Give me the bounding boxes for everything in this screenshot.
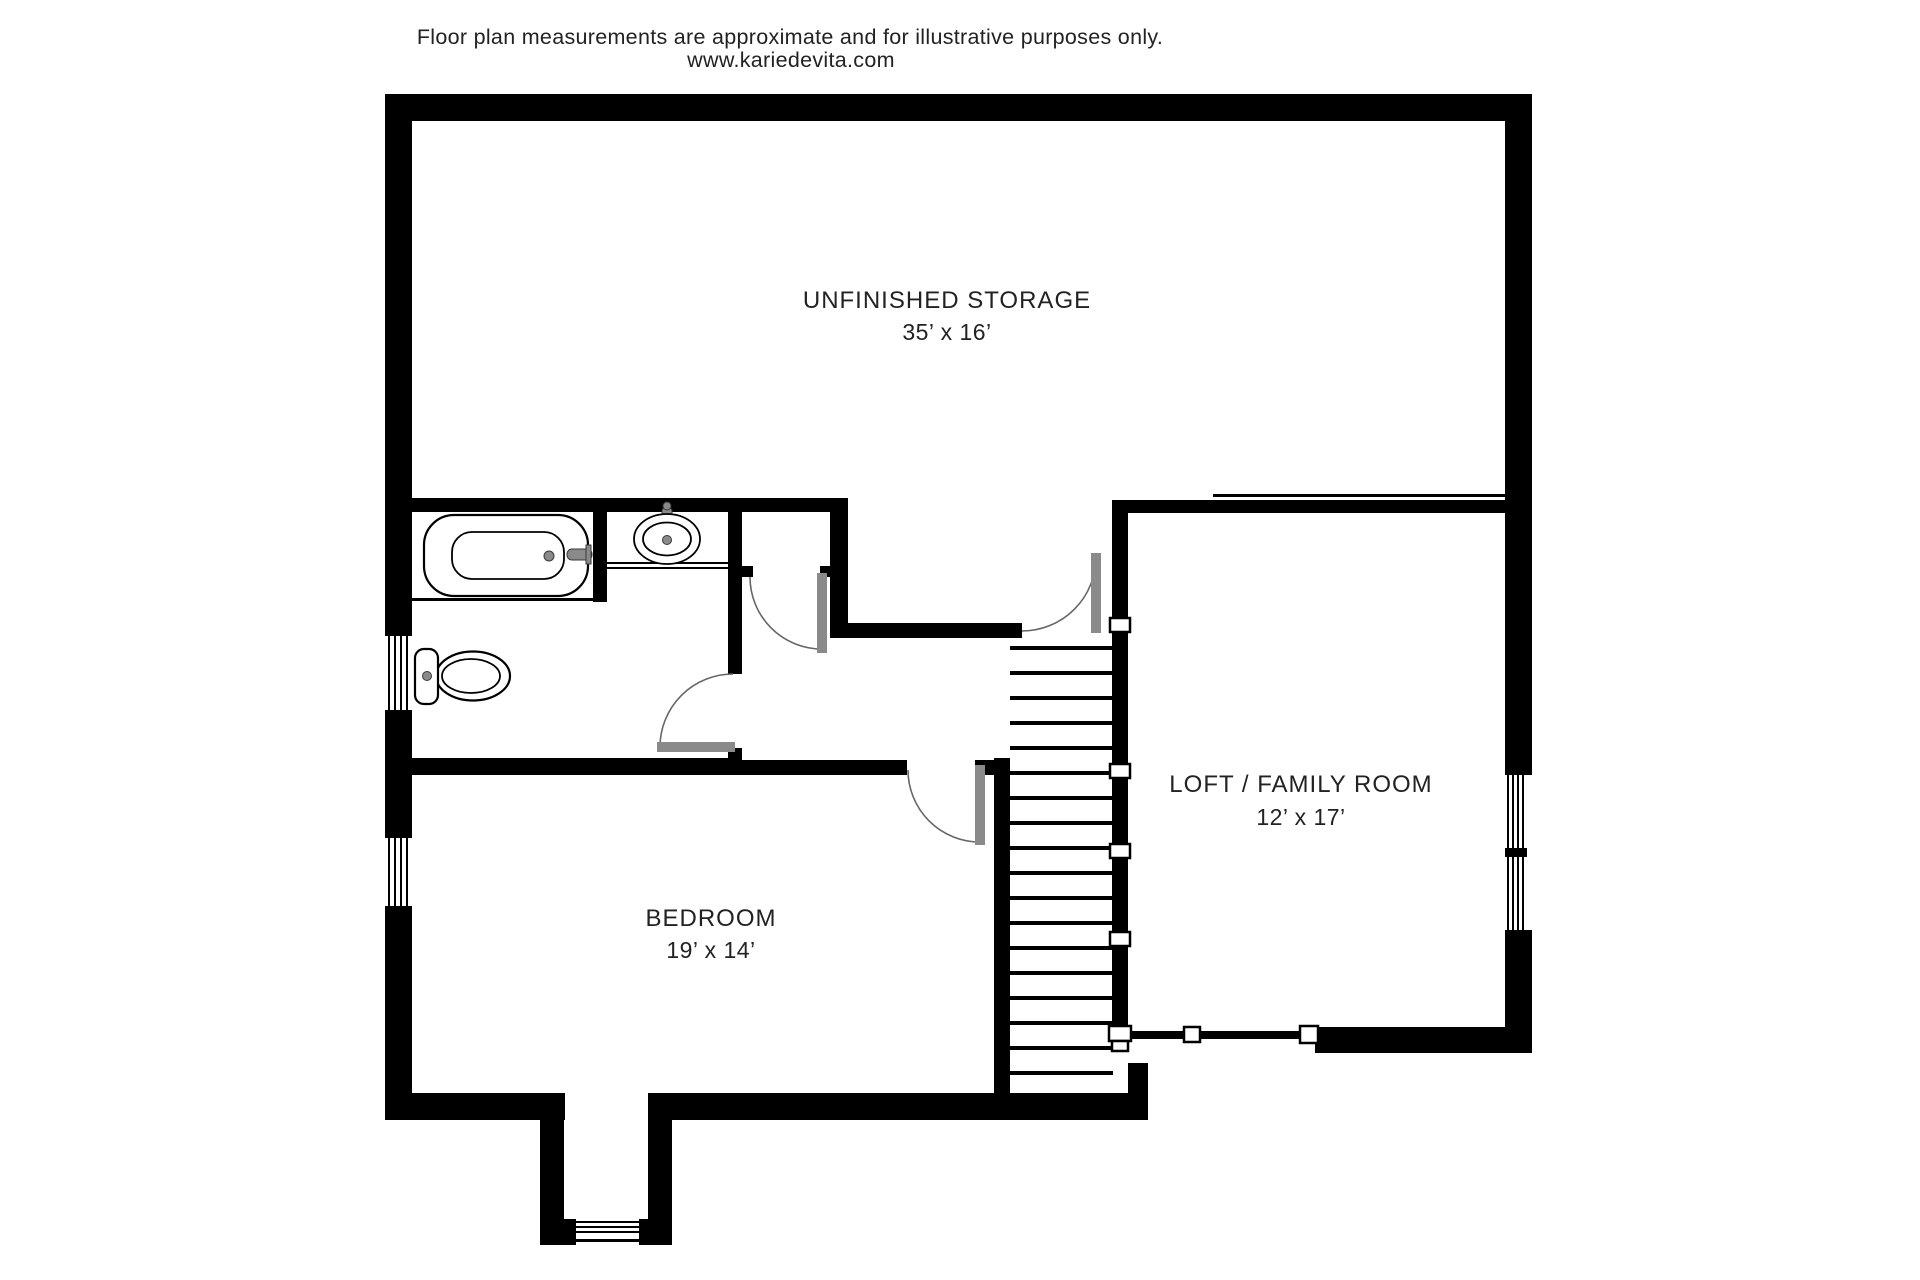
room-labels: UNFINISHED STORAGE 35’ x 16’ LOFT / FAMI… xyxy=(645,287,1432,963)
wall-loft-bottom xyxy=(1315,1027,1532,1053)
tub-drain xyxy=(544,551,554,561)
door-panel xyxy=(1091,553,1101,633)
staircase-icon xyxy=(1010,618,1318,1075)
bathroom-door xyxy=(657,674,735,752)
door-swing-icon xyxy=(750,577,822,649)
wall-stairwell-left xyxy=(994,758,1010,1120)
disclaimer-text: Floor plan measurements are approximate … xyxy=(417,25,1163,49)
loft-railing xyxy=(1128,1031,1304,1039)
railing-posts xyxy=(1109,618,1318,1051)
wall-loft-north xyxy=(1112,500,1532,513)
wall-bathroom-closet-divider xyxy=(728,498,742,674)
wall-left-bottom xyxy=(385,908,412,1120)
window-right-upper xyxy=(1505,772,1532,848)
wall-hall-north xyxy=(830,623,1022,638)
window-left-bedroom xyxy=(385,835,412,909)
storage-room-dimensions: 35’ x 16’ xyxy=(902,319,991,345)
wall-bottom xyxy=(648,1093,1148,1120)
exterior-walls xyxy=(385,94,1532,1245)
tub-front-edge-line xyxy=(412,598,593,601)
door-panel xyxy=(657,742,735,752)
closet-door-jamb-left xyxy=(742,566,753,577)
bathtub-icon xyxy=(424,515,592,596)
toilet-icon xyxy=(415,649,510,704)
wall-top xyxy=(385,94,1532,121)
bedroom-label: BEDROOM xyxy=(645,905,776,932)
closet-door xyxy=(750,573,827,653)
wall-bathroom-north xyxy=(412,498,848,512)
wall-closet-right xyxy=(830,498,848,625)
bedroom-door xyxy=(908,765,985,845)
header: Floor plan measurements are approximate … xyxy=(417,25,1163,72)
door-swing-icon xyxy=(660,674,733,747)
sink-drain xyxy=(663,536,672,545)
loft-room-dimensions: 12’ x 17’ xyxy=(1256,804,1345,830)
wall-bedroom-north-right xyxy=(742,760,907,775)
wall-left-mid xyxy=(385,712,412,838)
sink-faucet-handle xyxy=(663,502,671,510)
door-swing-icon xyxy=(1022,557,1096,631)
window-right-lower xyxy=(1505,857,1532,933)
wall-bedroom-north-left xyxy=(412,758,728,775)
storage-loft-seam-line xyxy=(1213,494,1505,497)
floor-plan-image: Floor plan measurements are approximate … xyxy=(0,0,1920,1280)
hall-loft-door xyxy=(1022,553,1101,633)
wall-left-top xyxy=(385,94,412,633)
tub-faucet-stem xyxy=(586,545,591,564)
window-bay xyxy=(576,1221,639,1242)
loft-room-label: LOFT / FAMILY ROOM xyxy=(1169,771,1432,798)
vanity-edge-line-2 xyxy=(607,567,728,569)
wall-bedroom-south xyxy=(385,1093,565,1120)
window-left-bathroom xyxy=(385,633,412,713)
toilet-flush-button xyxy=(423,672,432,681)
storage-room-label: UNFINISHED STORAGE xyxy=(803,287,1091,314)
wall-stair-bottom-stub xyxy=(1128,1063,1148,1095)
bay-wall-bottom-left xyxy=(540,1219,576,1245)
door-swing-icon xyxy=(908,770,980,842)
website-text: www.kariedevita.com xyxy=(686,48,895,72)
wall-right-upper xyxy=(1505,94,1532,773)
bedroom-dimensions: 19’ x 14’ xyxy=(666,937,755,963)
floor-plan-page: Floor plan measurements are approximate … xyxy=(0,0,1920,1280)
door-panel xyxy=(817,573,827,653)
wall-tub-divider xyxy=(593,512,607,602)
bathroom-door-jamb xyxy=(728,748,742,775)
door-panel xyxy=(975,765,985,845)
wall-right-window-separator xyxy=(1505,848,1527,857)
